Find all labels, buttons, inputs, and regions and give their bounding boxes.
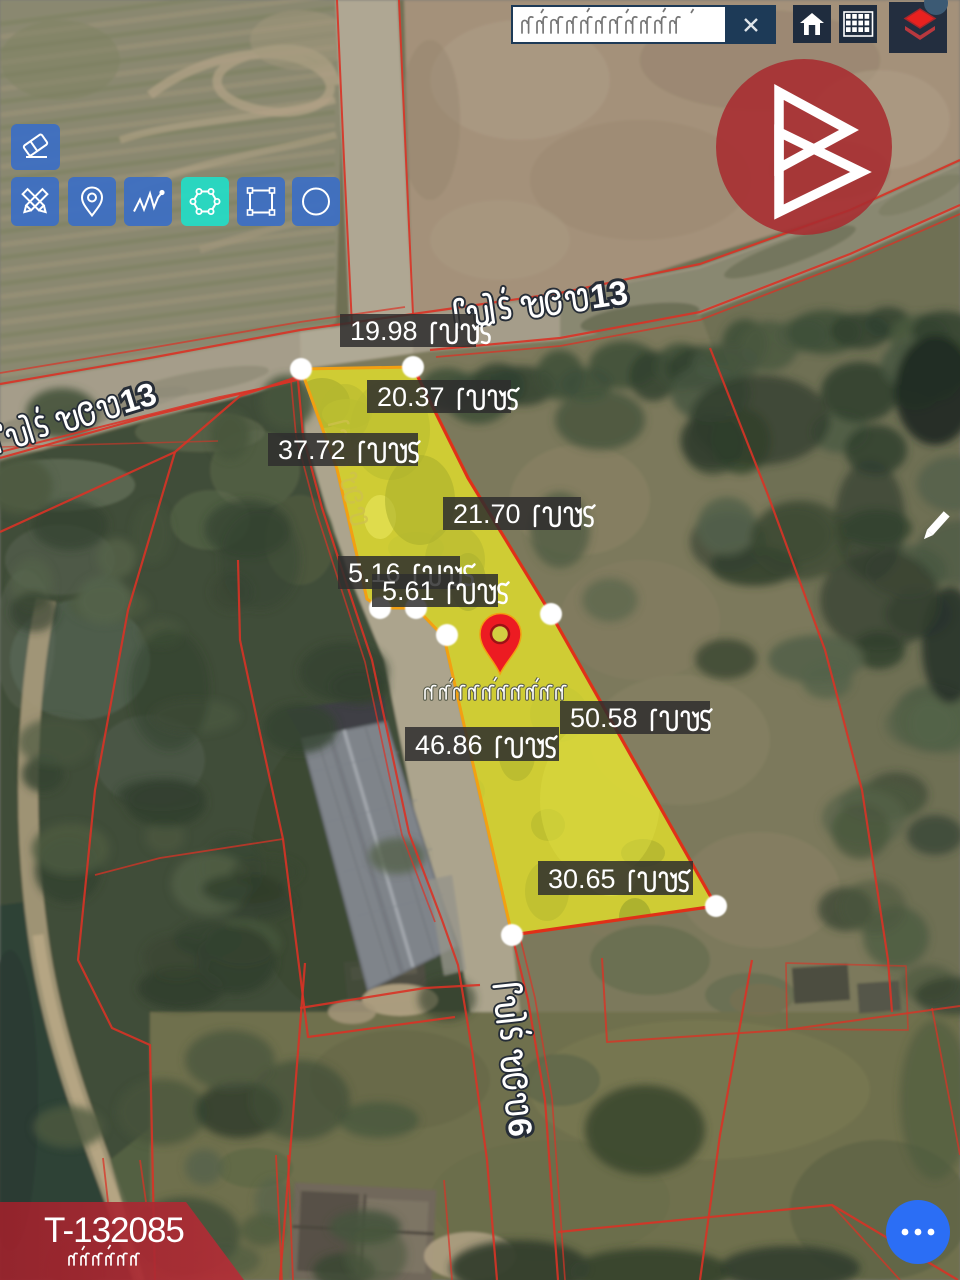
svg-text:30.65: 30.65 <box>548 864 616 894</box>
svg-text:50.58: 50.58 <box>570 703 638 733</box>
svg-text:13: 13 <box>588 275 630 317</box>
svg-text:20.37: 20.37 <box>377 382 445 412</box>
svg-text:5.61: 5.61 <box>382 576 435 606</box>
svg-text:37.72: 37.72 <box>278 435 346 465</box>
svg-text:T-132085: T-132085 <box>44 1211 184 1250</box>
svg-text:19.98: 19.98 <box>350 316 418 346</box>
svg-text:21.70: 21.70 <box>453 499 521 529</box>
svg-text:6: 6 <box>500 1116 539 1138</box>
svg-text:46.86: 46.86 <box>415 730 483 760</box>
